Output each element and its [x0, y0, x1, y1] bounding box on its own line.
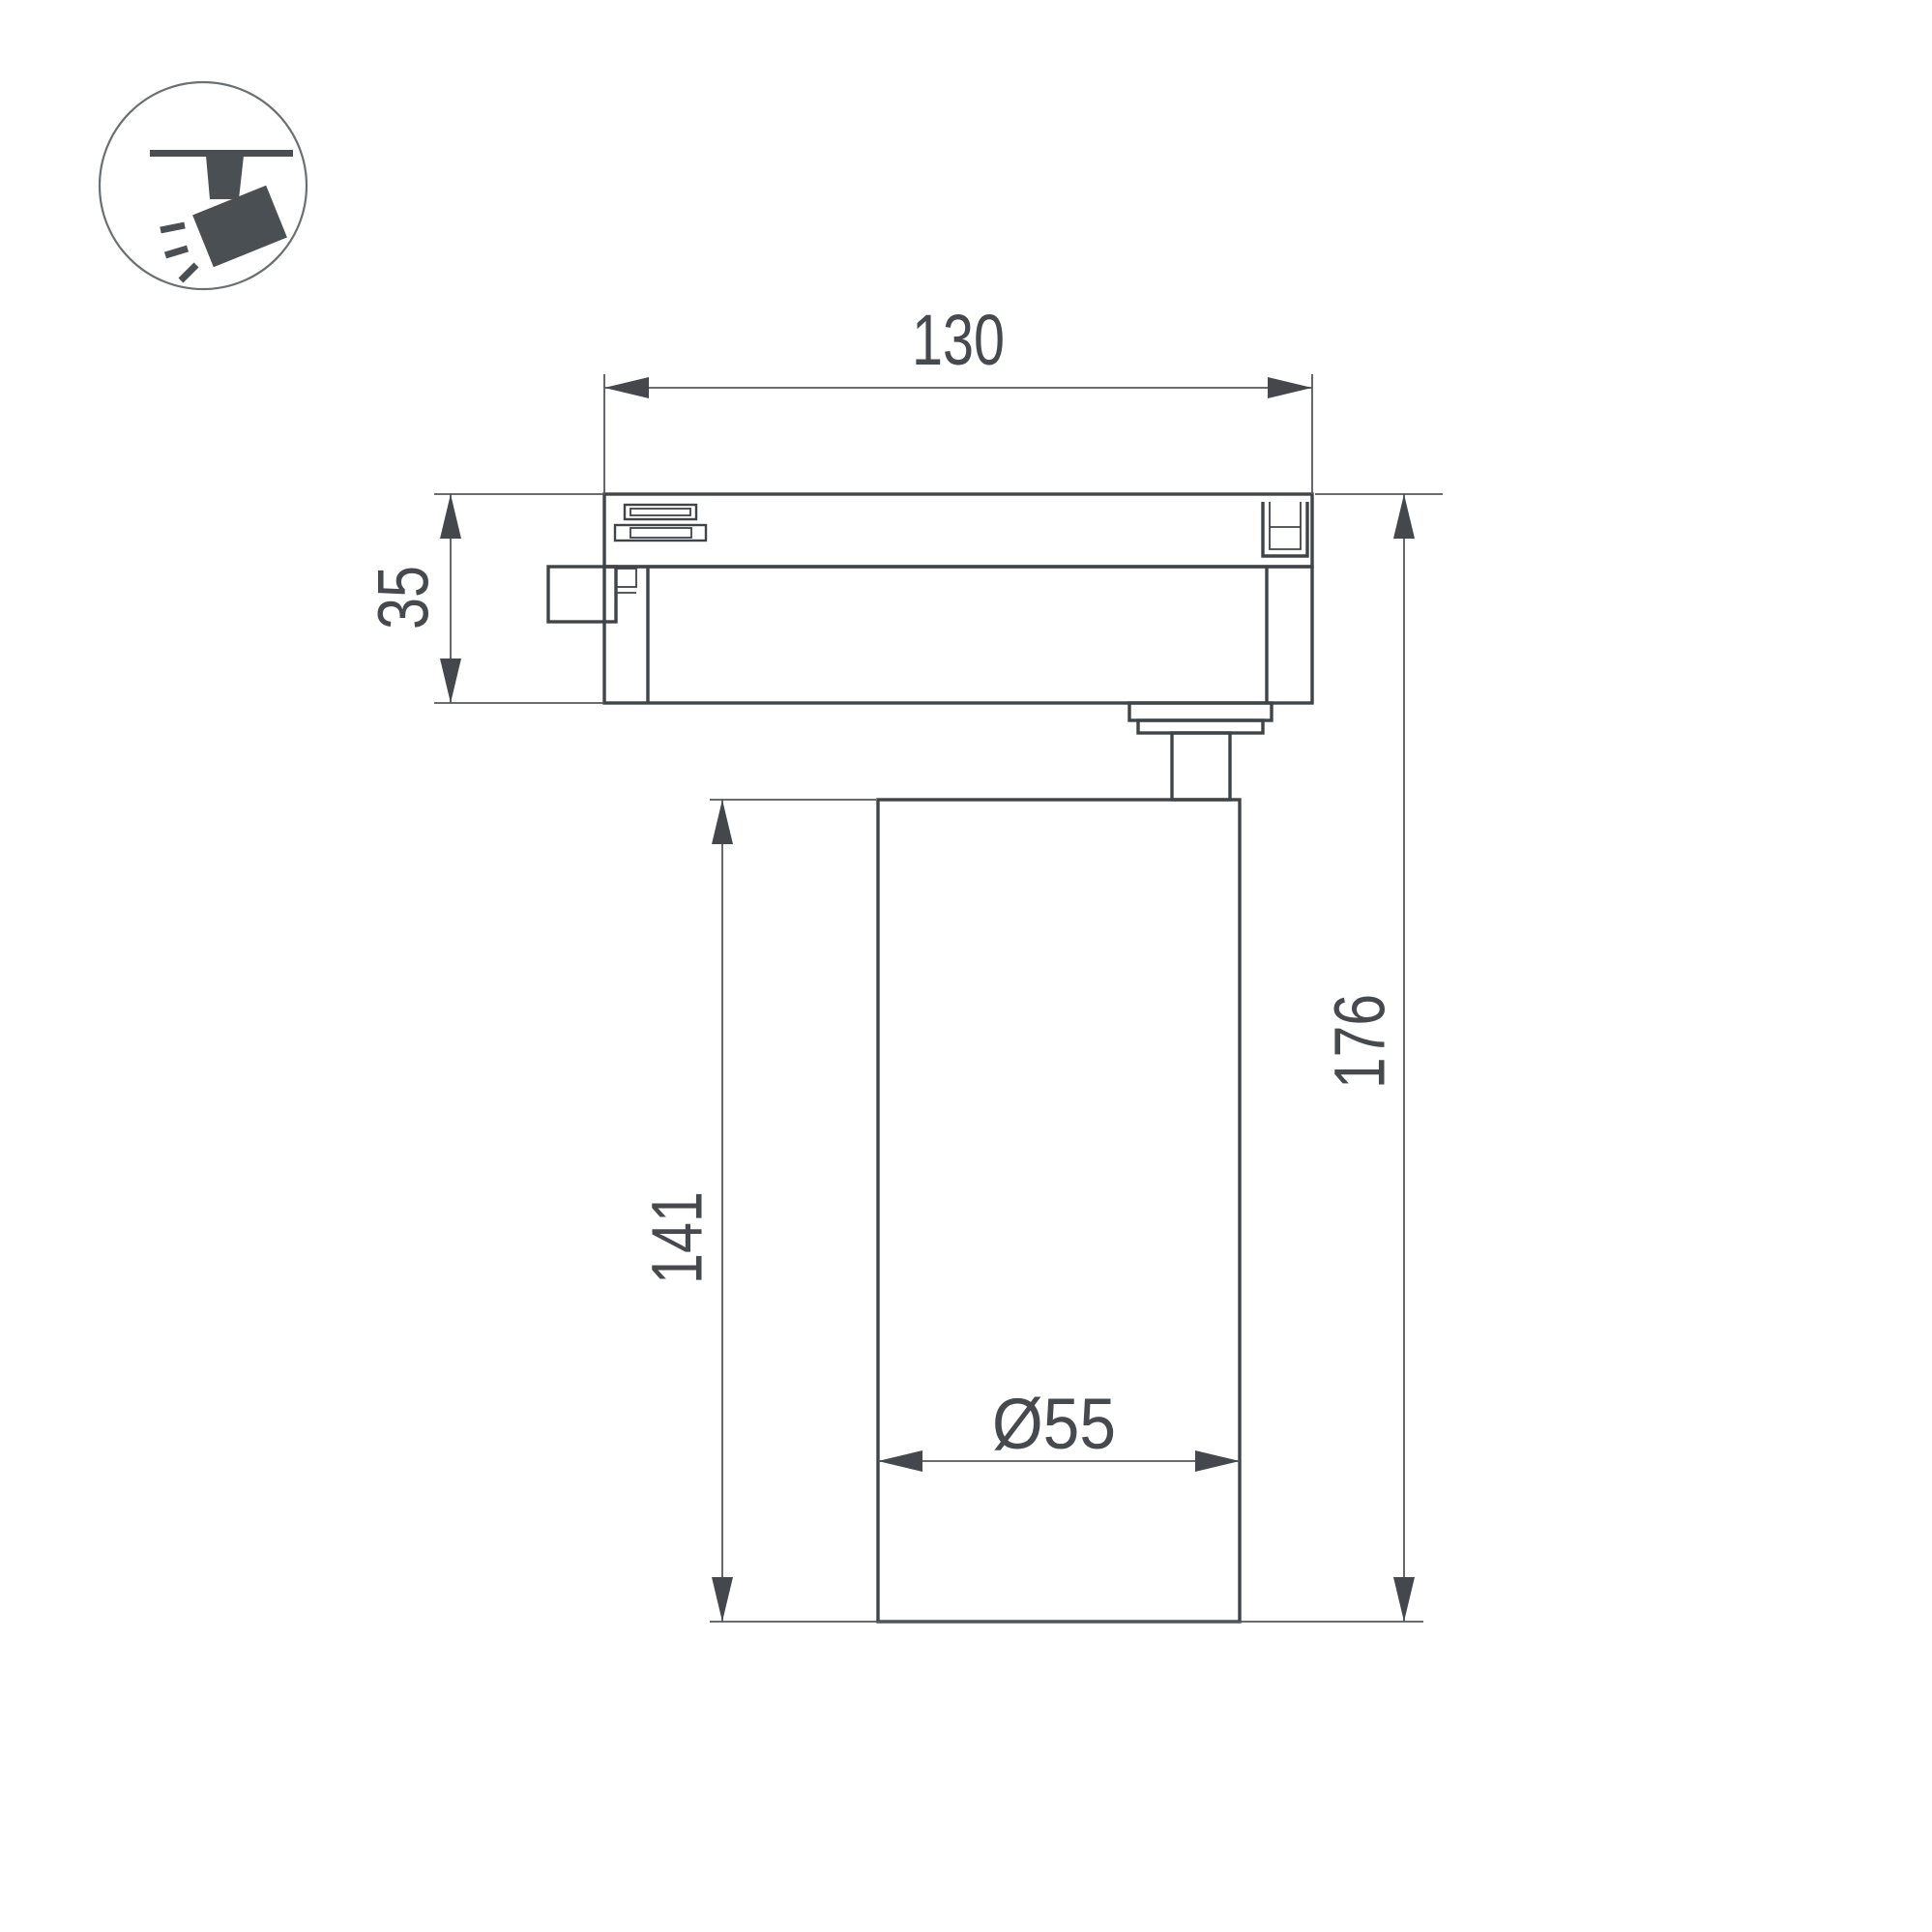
icon-stem: [206, 156, 244, 199]
swivel-flange-upper: [1129, 703, 1272, 720]
adapter-right-bracket-inner: [1270, 502, 1301, 549]
arrowhead-left: [604, 377, 649, 398]
track-adapter-height-label: 35: [364, 566, 444, 629]
adapter-tab-latch: [616, 569, 636, 587]
icon-track-bar: [150, 150, 293, 157]
dim-overall-height: 176: [1315, 494, 1443, 1622]
lamp-body-outline: [878, 800, 1240, 1622]
track-adapter-width-label: 130: [912, 300, 1005, 380]
adapter-top-plate: [604, 494, 1312, 567]
contact-strip-upper: [625, 505, 696, 519]
swivel-flange-lower: [1138, 720, 1263, 733]
dim-lamp-body-diameter: Ø55: [878, 1384, 1240, 1472]
arrowhead-up: [440, 494, 461, 539]
contact-strip-lower-inner: [630, 528, 691, 538]
arrowhead-down: [1393, 1577, 1415, 1622]
technical-drawing: 130 35 141 176 Ø55: [0, 0, 1932, 1932]
arrowhead-left: [878, 1450, 922, 1472]
dim-track-adapter-height: 35: [364, 494, 605, 703]
lamp-body-diameter-label: Ø55: [992, 1384, 1116, 1464]
dim-lamp-body-height: 141: [637, 800, 877, 1622]
swivel-stem: [1172, 733, 1230, 800]
overall-height-label: 176: [1320, 994, 1400, 1089]
icon-circle: [100, 82, 307, 289]
arrowhead-right: [1195, 1450, 1240, 1472]
adapter-lower-body: [604, 567, 1312, 703]
arrowhead-down: [712, 1577, 733, 1622]
lamp-body-height-label: 141: [637, 1191, 717, 1284]
dim-track-adapter-width: 130: [604, 300, 1312, 494]
arrowhead-up: [1393, 494, 1415, 539]
diagram-canvas: 130 35 141 176 Ø55: [0, 0, 1932, 1932]
icon-light-ray: [161, 225, 185, 230]
track-adapter-outline: [548, 494, 1312, 800]
arrowhead-right: [1268, 377, 1312, 398]
arrowhead-up: [712, 800, 733, 844]
arrowhead-down: [440, 659, 461, 703]
contact-strip-upper-inner: [630, 509, 690, 515]
track-spotlight-icon: [100, 82, 307, 289]
